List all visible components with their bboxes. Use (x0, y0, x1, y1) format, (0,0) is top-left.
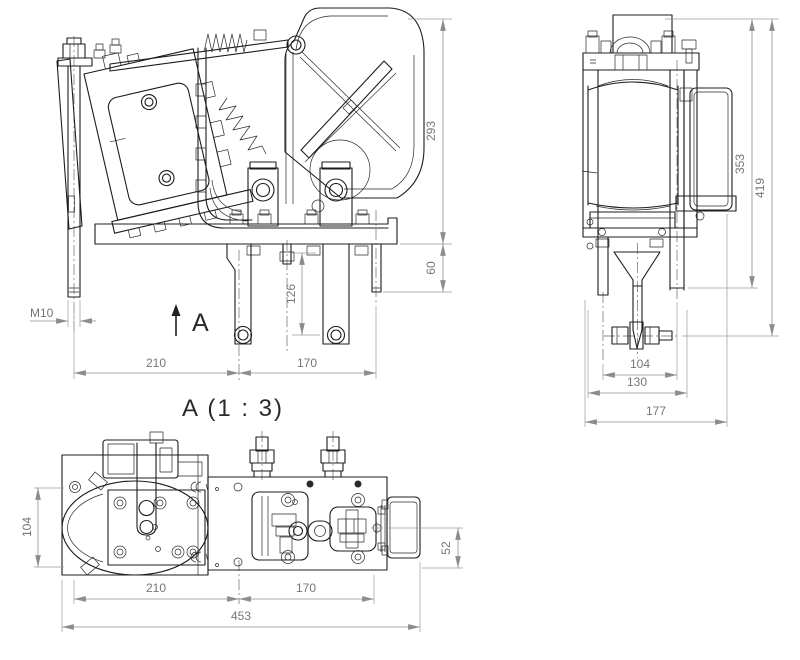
dim-front-rod-projection: 60 (383, 244, 452, 292)
dim-text-210-plan: 210 (146, 581, 166, 595)
coil-cylinder (588, 82, 678, 228)
dim-text-104-plan: 104 (20, 517, 34, 537)
dim-text-m10: M10 (30, 306, 54, 320)
plan-body (62, 455, 420, 575)
terminal-studs (250, 437, 345, 477)
dim-front-terminal-depth: 126 (284, 253, 320, 335)
detail-view-title: A (1 : 3) (182, 395, 284, 422)
dim-text-170-front: 170 (297, 356, 317, 370)
contact-units (252, 492, 376, 560)
technical-drawing-sheet: A 293 60 126 210 170 (0, 0, 800, 660)
dim-text-60: 60 (424, 261, 438, 275)
dim-front-overall-height: 293 (400, 19, 452, 244)
side-frame (583, 15, 699, 237)
dim-text-126: 126 (284, 284, 298, 304)
dim-text-170-plan: 170 (296, 581, 316, 595)
dim-side-overall-width: 177 (585, 214, 727, 427)
top-hardware (586, 31, 696, 70)
dim-text-52: 52 (439, 541, 453, 555)
side-view: 353 419 104 130 177 (582, 15, 779, 427)
terminal-bars (227, 244, 381, 344)
strap-lever (103, 440, 178, 535)
dim-plan-depth: 104 (20, 488, 64, 567)
arc-chute-side (676, 88, 736, 220)
dim-side-rod-spacing: 104 (603, 302, 677, 380)
dim-front-spans: 210 170 (74, 302, 376, 379)
dim-text-453: 453 (231, 609, 251, 623)
front-view: A 293 60 126 210 170 (30, 8, 452, 380)
dim-plan-overall-length: 453 (62, 562, 420, 632)
arc-chute (285, 8, 424, 212)
dim-plan-spans: 210 170 (74, 575, 374, 604)
mounting-rod-left (57, 38, 92, 297)
view-arrow-a: A (172, 304, 210, 337)
lever-assembly (598, 237, 672, 349)
dim-plan-terminal-offset: 52 (384, 528, 463, 568)
contactor-three-view-drawing: A 293 60 126 210 170 (0, 0, 800, 660)
dim-text-104-side: 104 (630, 357, 650, 371)
dim-text-293: 293 (424, 121, 438, 141)
dim-text-353: 353 (733, 154, 747, 174)
dim-front-thread-callout: M10 (30, 300, 96, 327)
dim-text-419: 419 (753, 178, 767, 198)
dim-text-210-front: 210 (146, 356, 166, 370)
dim-text-177: 177 (646, 404, 666, 418)
plan-view: A (1 : 3) (20, 395, 463, 632)
contact-unit-details (262, 496, 366, 556)
dim-text-130: 130 (627, 375, 647, 389)
dim-side-body-height: 353 (665, 19, 779, 288)
coil-assembly (75, 31, 255, 241)
view-arrow-label: A (192, 309, 209, 337)
